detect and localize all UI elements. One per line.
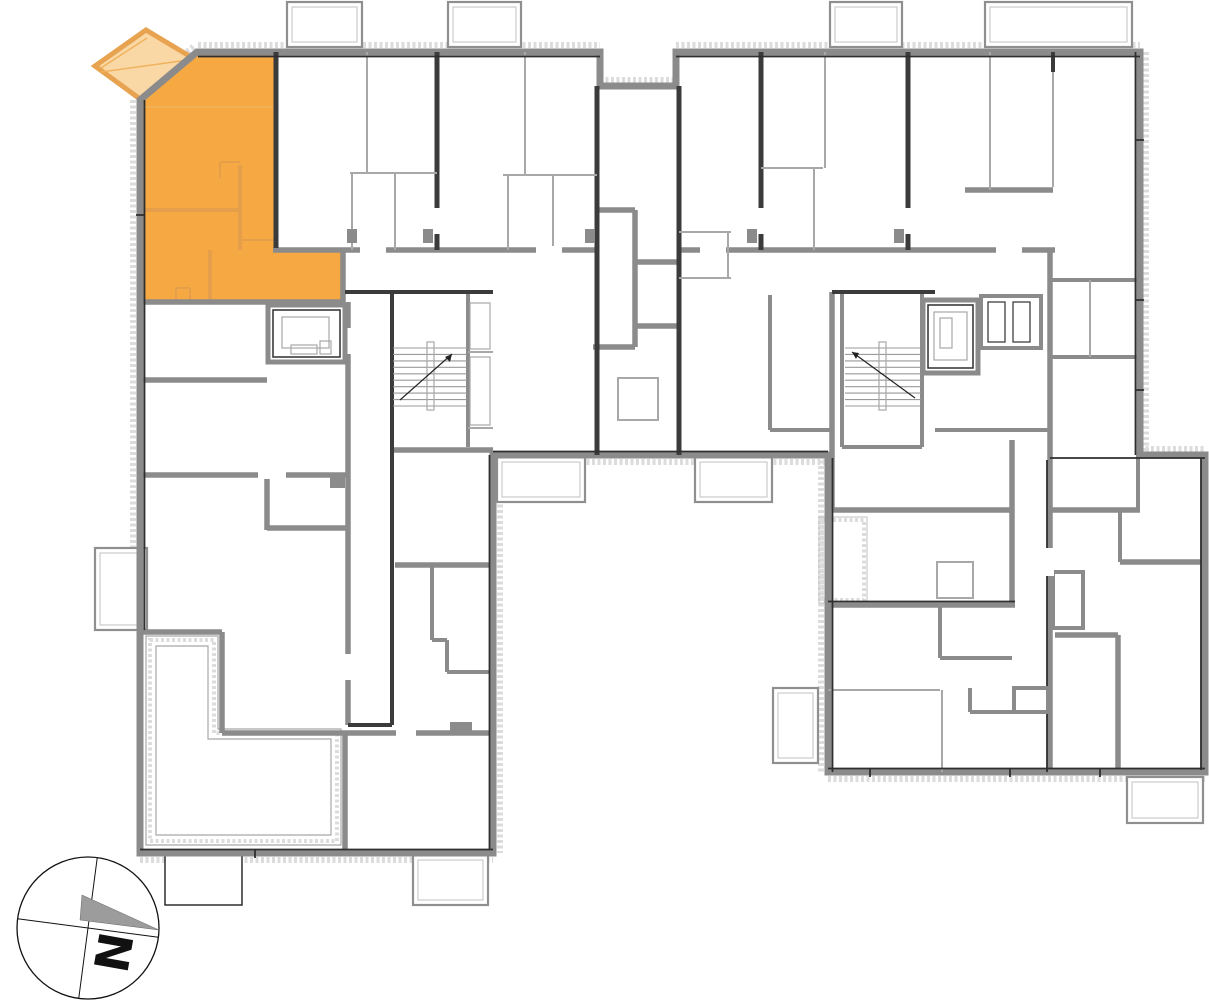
balcony — [1127, 777, 1203, 823]
utility-shaft-right — [981, 296, 1041, 348]
terrace — [146, 636, 341, 845]
door-jamb — [747, 229, 757, 243]
balcony — [165, 855, 242, 905]
door-jamb — [585, 229, 595, 243]
shaft-box — [937, 562, 973, 598]
floor-plan-svg: N — [0, 0, 1209, 1000]
duct-box — [1053, 572, 1083, 628]
staircase-right — [845, 342, 921, 410]
shaft-box — [618, 378, 658, 420]
elevator-left — [268, 305, 345, 362]
compass-rose: N — [8, 848, 167, 1000]
walls-dark-thin — [345, 52, 1053, 725]
vent-shaft — [470, 303, 490, 349]
door-jamb — [450, 722, 472, 733]
balcony — [448, 2, 521, 47]
door-jamb — [347, 229, 357, 243]
balcony — [830, 2, 902, 47]
balcony — [287, 2, 362, 47]
door-jamb — [330, 475, 345, 488]
staircase-left — [393, 342, 467, 410]
balcony — [773, 688, 818, 763]
floor-plan-page: N — [0, 0, 1209, 1000]
door-openings — [258, 208, 1054, 737]
door-jamb — [894, 229, 904, 243]
courtyard-balcony — [695, 457, 772, 502]
bath-box — [1014, 688, 1048, 712]
balcony — [985, 2, 1132, 47]
courtyard-balcony — [497, 457, 585, 502]
vent-shaft — [470, 357, 490, 425]
door-jamb — [423, 229, 433, 243]
balcony — [413, 855, 488, 905]
walls-thin — [350, 52, 1090, 772]
elevator-right — [923, 300, 978, 373]
terrace-hatch — [150, 640, 337, 841]
terrace-outline — [146, 636, 341, 845]
